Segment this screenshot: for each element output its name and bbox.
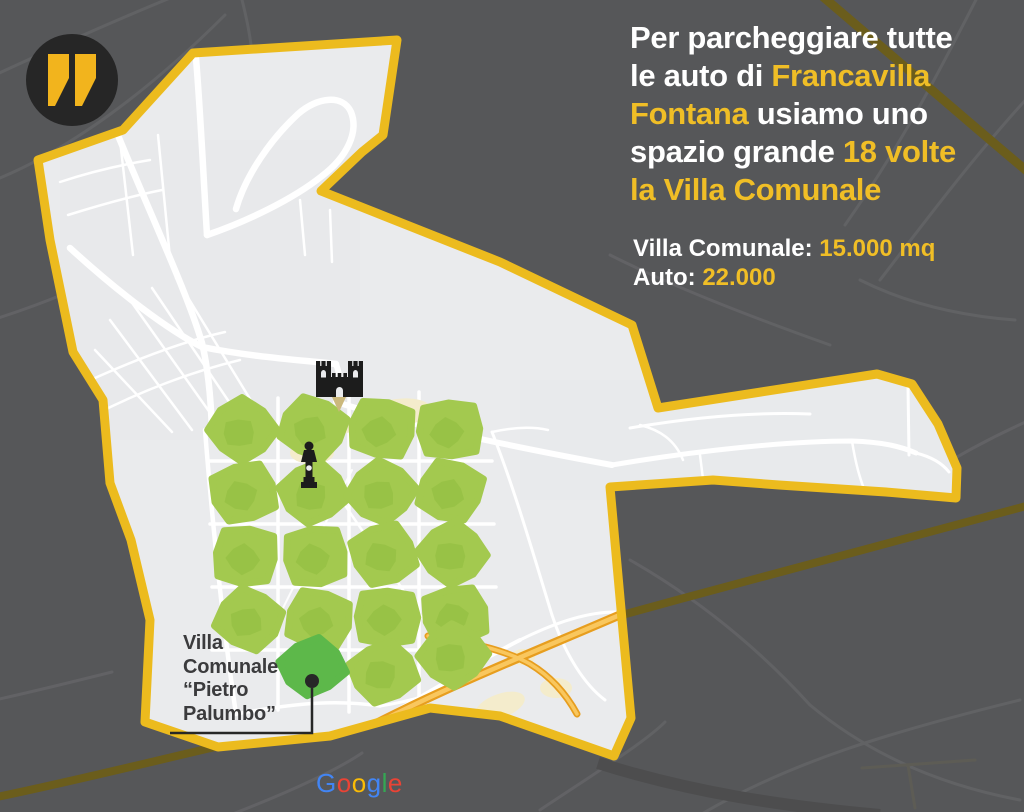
villa-label-line: “Pietro: [183, 679, 278, 703]
green-patch-texture: [364, 482, 393, 509]
green-patch-texture: [366, 661, 395, 688]
infographic: Per parcheggiare tuttele auto di Francav…: [0, 0, 1024, 812]
villa-label-line: Comunale: [183, 656, 278, 680]
green-patch-texture: [224, 420, 254, 446]
villa-label-line: Palumbo”: [183, 703, 278, 727]
villa-label-line: Villa: [183, 632, 278, 656]
stats: Villa Comunale: 15.000 mqAuto: 22.000: [633, 234, 935, 292]
villa-comunale-label: VillaComunale“PietroPalumbo”: [183, 632, 278, 726]
quote-icon: [26, 34, 118, 126]
text-line: Villa Comunale: 15.000 mq: [633, 234, 935, 263]
text-line: le auto di Francavilla: [630, 57, 1024, 95]
villa-marker-dot: [305, 674, 319, 688]
text-line: Fontana usiamo uno: [630, 95, 1024, 133]
text-line: la Villa Comunale: [630, 171, 1024, 209]
headline: Per parcheggiare tuttele auto di Francav…: [630, 19, 1024, 209]
green-patch-texture: [436, 644, 465, 671]
text-line: Per parcheggiare tutte: [630, 19, 1024, 57]
google-logo: Google: [316, 768, 403, 799]
text-line: spazio grande 18 volte: [630, 133, 1024, 171]
text-line: Auto: 22.000: [633, 263, 935, 292]
green-patch-texture: [435, 543, 465, 569]
